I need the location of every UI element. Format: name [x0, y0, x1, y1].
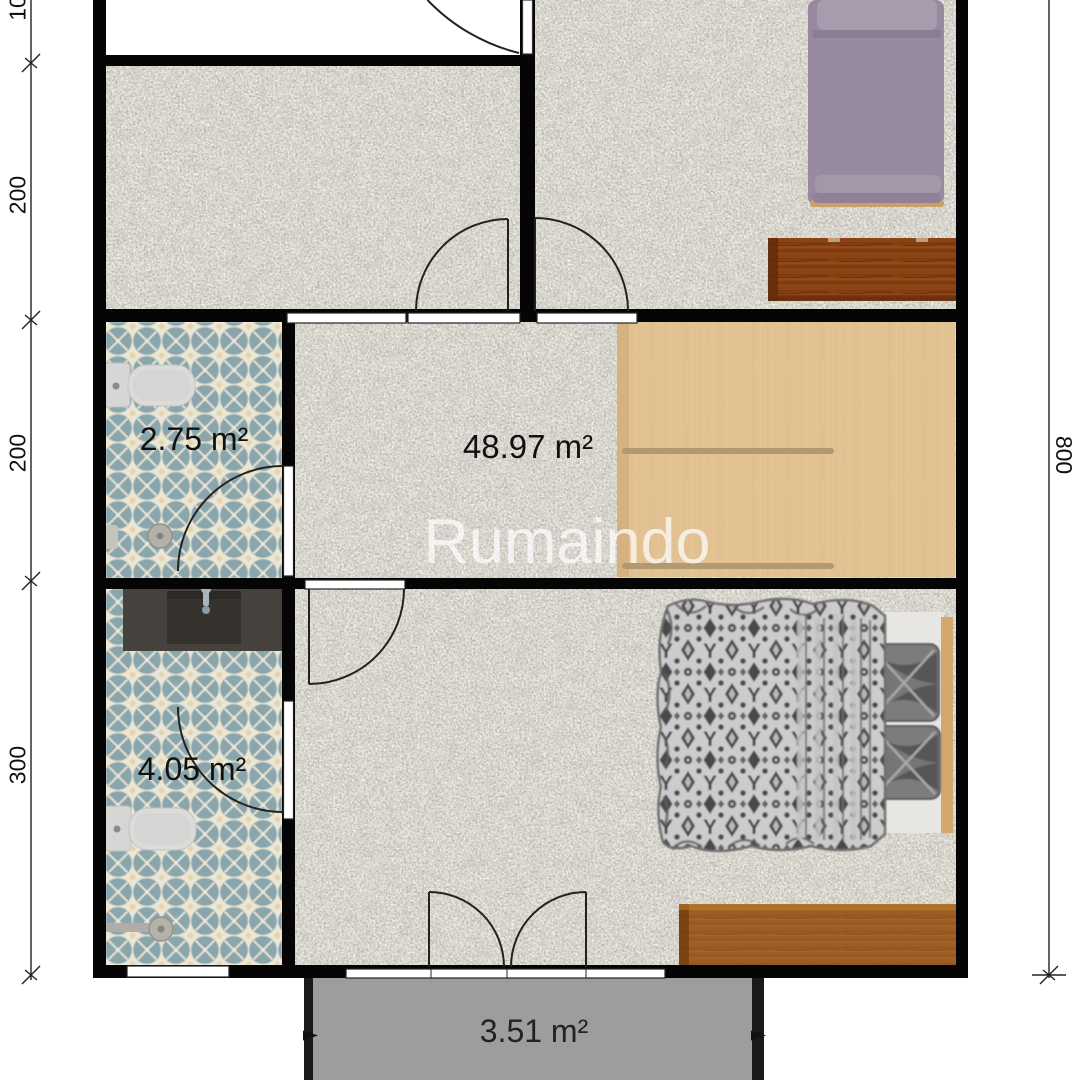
- svg-text:Rumaindo: Rumaindo: [423, 507, 710, 577]
- svg-text:3.51 m²: 3.51 m²: [480, 1013, 589, 1049]
- svg-text:300: 300: [5, 746, 31, 784]
- svg-text:800: 800: [1051, 436, 1077, 474]
- svg-text:200: 200: [5, 434, 31, 472]
- svg-text:10: 10: [5, 0, 31, 21]
- svg-text:4.05 m²: 4.05 m²: [138, 751, 247, 787]
- svg-text:48.97 m²: 48.97 m²: [463, 428, 593, 465]
- svg-text:200: 200: [5, 176, 31, 214]
- svg-text:2.75 m²: 2.75 m²: [140, 421, 249, 457]
